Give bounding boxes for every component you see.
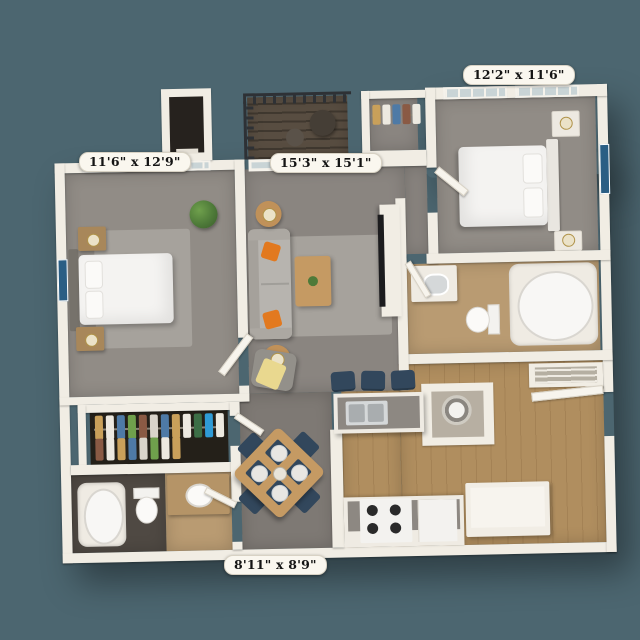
clothes-item — [95, 439, 103, 461]
clothes-item — [128, 415, 137, 439]
clothes-item — [106, 438, 114, 460]
dishwasher — [418, 499, 458, 542]
sink-basin-left — [349, 404, 365, 422]
stove-burner — [390, 522, 401, 533]
entry-cabinet — [465, 481, 550, 537]
sofa-cushion-seam — [261, 283, 289, 286]
balcony-storage-interior — [169, 96, 204, 153]
closet1-clothes-top — [95, 413, 224, 440]
clothes-item — [194, 413, 203, 437]
clothes-item — [139, 438, 147, 460]
kitchen-sink — [346, 401, 388, 426]
entry-closet-shelves — [535, 366, 597, 383]
closet1-clothes-bottom — [95, 437, 180, 461]
clothes-item — [117, 438, 125, 460]
stove-burner — [367, 523, 378, 534]
sink-basin-right — [368, 404, 384, 422]
hall-to-bedroom2-floor — [405, 166, 429, 254]
clothes-item — [106, 415, 115, 439]
bedroom1-wall-art — [57, 259, 68, 301]
sofa-back — [248, 229, 260, 339]
bar-stool-2 — [361, 371, 385, 391]
clothes-item — [172, 414, 181, 438]
bar-stool-3 — [391, 370, 416, 391]
closet2-wall-left — [361, 91, 370, 159]
wall-right-outer-lower — [604, 436, 616, 552]
living-room-dimension-label: 15'3" x 15'1" — [270, 153, 382, 173]
floor-plan — [0, 0, 640, 640]
clothes-item — [161, 414, 170, 438]
bedroom1-dimension-text: 11'6" x 12'9" — [89, 154, 181, 169]
clothes-item — [95, 416, 104, 440]
bedroom2-window-left — [443, 86, 507, 99]
closet2-wall-top — [361, 90, 425, 99]
wall-bedroom2-left-upper — [425, 88, 437, 168]
clothes-item — [205, 413, 214, 437]
wall-dining-left-c — [232, 542, 242, 550]
bedroom2-pillow-top — [522, 153, 543, 183]
clothes-item — [402, 104, 410, 124]
bedroom1-pillow-top — [85, 261, 104, 289]
stove-burner — [367, 505, 378, 516]
sofa-arm-bottom — [250, 328, 292, 340]
balcony-railing-left — [243, 101, 254, 159]
bedroom2-window-right — [515, 85, 579, 98]
flex-space-dimension-text: 8'11" x 8'9" — [234, 557, 317, 572]
clothes-item — [161, 437, 169, 459]
clothes-item — [172, 437, 180, 459]
bedroom2-pillow-bottom — [523, 187, 544, 217]
balcony-railing-top — [243, 91, 351, 104]
bedroom1-dimension-label: 11'6" x 12'9" — [79, 152, 191, 172]
sofa-arm-top — [248, 229, 290, 241]
clothes-item — [150, 414, 159, 438]
closet2-clothes — [372, 104, 420, 125]
living-room-dimension-text: 15'3" x 15'1" — [280, 155, 372, 170]
stove — [360, 498, 413, 543]
bedroom2-dimension-label: 12'2" x 11'6" — [463, 65, 575, 85]
bedroom1-pillow-bottom — [85, 291, 104, 319]
clothes-item — [216, 413, 225, 437]
closet1-wall-left — [78, 405, 87, 473]
clothes-item — [139, 415, 148, 439]
wall-kitchen-stub — [330, 430, 344, 548]
bedroom2-dimension-text: 12'2" x 11'6" — [473, 67, 565, 82]
bedroom2-wall-art — [599, 144, 610, 194]
clothes-item — [392, 104, 400, 124]
clothes-item — [412, 104, 420, 124]
bar-stool-1 — [330, 371, 355, 393]
clothes-item — [150, 437, 158, 459]
flex-space-dimension-label: 8'11" x 8'9" — [224, 555, 327, 575]
clothes-item — [183, 414, 192, 438]
bedroom2-headboard — [546, 139, 560, 231]
clothes-item — [128, 438, 136, 460]
floor-plan-image: 11'6" x 12'9" 15'3" x 15'1" 12'2" x 11'6… — [0, 0, 640, 640]
clothes-item — [372, 105, 380, 125]
clothes-item — [382, 104, 390, 124]
stove-burner — [390, 504, 401, 515]
entry-cabinet-top — [470, 486, 545, 528]
clothes-item — [117, 415, 126, 439]
